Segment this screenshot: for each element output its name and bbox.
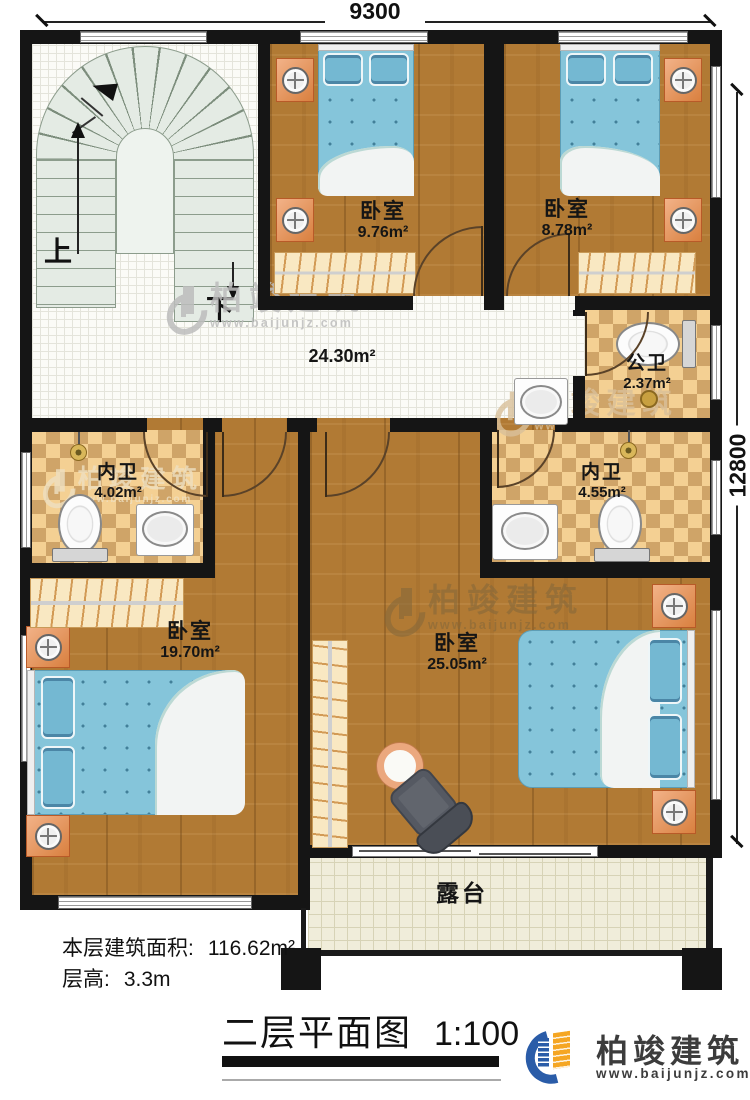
toilet-tank xyxy=(52,548,108,562)
room-label-bedroom-4: 卧室 25.05m² xyxy=(427,632,487,675)
pillow xyxy=(41,676,75,739)
lamp-icon xyxy=(282,207,309,234)
terrace-edge xyxy=(301,950,713,956)
floor-height-info: 层高:3.3m xyxy=(62,963,171,993)
wardrobe xyxy=(274,252,416,294)
wall xyxy=(298,418,310,910)
bed xyxy=(318,44,414,196)
door-leaf xyxy=(325,432,327,497)
room-name: 卧室 xyxy=(160,620,220,644)
brand-logo xyxy=(526,1024,588,1090)
watermark-logo-icon xyxy=(386,586,420,632)
stair-up-arrow-line xyxy=(77,136,79,254)
room-name: 公卫 xyxy=(623,353,671,375)
door-leaf xyxy=(481,226,483,296)
room-name: 内卫 xyxy=(578,462,626,484)
lamp-icon xyxy=(661,593,688,620)
floor-area-value: 116.62m² xyxy=(208,937,295,960)
nightstand xyxy=(664,58,702,102)
brand-url: www.baijunjz.com xyxy=(596,1066,750,1081)
floor-plan: 上 下 柏竣建筑 www.baijunjz.com 柏竣建筑 www.baiju… xyxy=(0,0,750,1100)
room-name: 内卫 xyxy=(94,462,142,484)
nightstand xyxy=(26,626,70,668)
room-name: 卧室 xyxy=(542,198,593,222)
room-area: 2.37m² xyxy=(623,375,671,392)
window xyxy=(300,31,428,43)
door-leaf xyxy=(206,432,208,497)
toilet xyxy=(58,494,102,554)
title-underline-thin xyxy=(222,1079,501,1081)
floor-area-info: 本层建筑面积:116.62m² xyxy=(62,932,295,962)
room-label-ensuite-right: 内卫 4.55m² xyxy=(578,462,626,501)
wall xyxy=(20,563,215,578)
pillow xyxy=(648,638,682,704)
drawing-title: 二层平面图 1:100 xyxy=(222,1004,519,1056)
floor-height-label: 层高: xyxy=(62,968,110,991)
room-area: 25.05m² xyxy=(427,656,487,674)
toilet-tank xyxy=(682,320,696,368)
wall xyxy=(480,430,492,578)
window xyxy=(711,66,721,198)
room-label-bedroom-2: 卧室 8.78m² xyxy=(542,198,593,241)
wall xyxy=(484,30,504,310)
room-label-ensuite-left: 内卫 4.02m² xyxy=(94,462,142,501)
bed-headboard xyxy=(687,630,695,788)
watermark-logo-icon xyxy=(168,284,202,330)
bed xyxy=(560,44,660,196)
window xyxy=(21,452,31,548)
nightstand xyxy=(276,198,314,242)
bed-headboard xyxy=(318,44,414,51)
pillow xyxy=(648,714,682,780)
lamp-icon xyxy=(661,799,688,826)
drawing-title-text: 二层平面图 xyxy=(222,1004,412,1056)
room-label-bedroom-1: 卧室 9.76m² xyxy=(358,200,409,243)
floor-area-label: 本层建筑面积: xyxy=(62,937,194,960)
terrace-label: 露台 xyxy=(436,874,488,908)
door-leaf xyxy=(222,432,224,497)
brand-building-icon xyxy=(553,1031,570,1069)
window xyxy=(711,325,721,400)
door-leaf xyxy=(585,312,587,376)
stair-up-label: 上 xyxy=(44,230,72,270)
terrace-column xyxy=(682,948,722,990)
floor-terrace xyxy=(308,858,708,954)
nightstand xyxy=(652,584,696,628)
watermark: 柏竣建筑 www.baijunjz.com xyxy=(386,584,584,634)
wall xyxy=(258,30,270,310)
staircase: 上 xyxy=(32,44,258,310)
pillow xyxy=(566,53,606,86)
lamp-icon xyxy=(35,823,62,850)
door-leaf xyxy=(497,430,499,488)
floor-drain xyxy=(640,390,658,408)
door-leaf xyxy=(568,233,570,296)
bed xyxy=(27,670,245,815)
nightstand xyxy=(276,58,314,102)
floor-height-value: 3.3m xyxy=(124,968,171,991)
pillow xyxy=(613,53,653,86)
wall xyxy=(258,296,413,310)
watermark-name: 柏竣建筑 xyxy=(428,582,584,618)
window xyxy=(558,31,688,43)
lamp-icon xyxy=(670,207,697,234)
dimension-right-value: 12800 xyxy=(725,426,750,506)
room-name: 卧室 xyxy=(427,632,487,656)
ceiling-lamp-icon xyxy=(620,442,637,459)
window xyxy=(711,610,721,800)
wall xyxy=(573,310,585,316)
window xyxy=(80,31,207,43)
brand-building-icon xyxy=(538,1038,549,1068)
toilet xyxy=(598,494,642,554)
wall xyxy=(555,418,710,432)
hall-area-label: 24.30m² xyxy=(308,346,375,367)
window xyxy=(58,896,252,909)
room-area: 8.78m² xyxy=(542,222,593,240)
room-area: 9.76m² xyxy=(358,224,409,242)
pillow xyxy=(41,746,75,809)
terrace-edge xyxy=(706,858,713,954)
sink-basin xyxy=(501,512,549,550)
room-name: 卧室 xyxy=(358,200,409,224)
wall xyxy=(575,296,722,310)
sliding-door-terrace xyxy=(352,846,598,857)
lamp-icon xyxy=(282,67,309,94)
lamp-icon xyxy=(670,67,697,94)
drawing-scale: 1:100 xyxy=(434,1015,519,1054)
wall xyxy=(20,418,147,432)
wall xyxy=(484,296,504,310)
wall xyxy=(573,376,585,418)
nightstand xyxy=(664,198,702,242)
dimension-top-value: 9300 xyxy=(325,0,425,25)
stair-center-island xyxy=(116,128,174,254)
pillow xyxy=(369,53,409,86)
title-underline-bold xyxy=(222,1056,499,1067)
room-area: 19.70m² xyxy=(160,644,220,662)
room-label-public-bath: 公卫 2.37m² xyxy=(623,353,671,392)
wall xyxy=(480,562,710,578)
nightstand xyxy=(26,815,70,857)
watermark-url: www.baijunjz.com xyxy=(210,316,353,330)
wardrobe xyxy=(578,252,696,294)
sink-basin xyxy=(520,385,562,419)
nightstand xyxy=(652,790,696,834)
wardrobe xyxy=(312,640,348,848)
pillow xyxy=(323,53,363,86)
room-label-bedroom-3: 卧室 19.70m² xyxy=(160,620,220,663)
window xyxy=(711,460,721,535)
brand-swoosh-icon xyxy=(516,1021,588,1094)
bed-headboard xyxy=(560,44,660,51)
toilet-tank xyxy=(594,548,650,562)
bed-headboard xyxy=(27,670,35,815)
lamp-icon xyxy=(35,634,62,661)
ceiling-lamp-icon xyxy=(70,444,87,461)
room-area: 4.55m² xyxy=(578,484,626,501)
room-area: 4.02m² xyxy=(94,484,142,501)
sink-basin xyxy=(142,511,188,547)
bed xyxy=(518,630,695,788)
stair-up-arrow-head xyxy=(71,122,85,138)
